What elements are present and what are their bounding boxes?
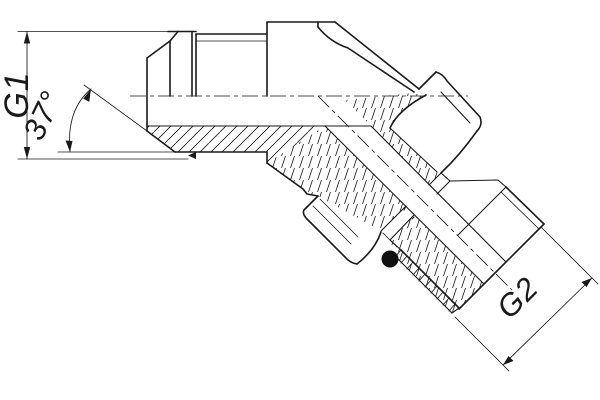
technical-drawing-canvas: G1 37° G2 bbox=[0, 0, 600, 400]
o-ring bbox=[382, 251, 399, 268]
drawing-background bbox=[0, 0, 600, 400]
fitting-diagram: G1 37° G2 bbox=[0, 0, 600, 400]
